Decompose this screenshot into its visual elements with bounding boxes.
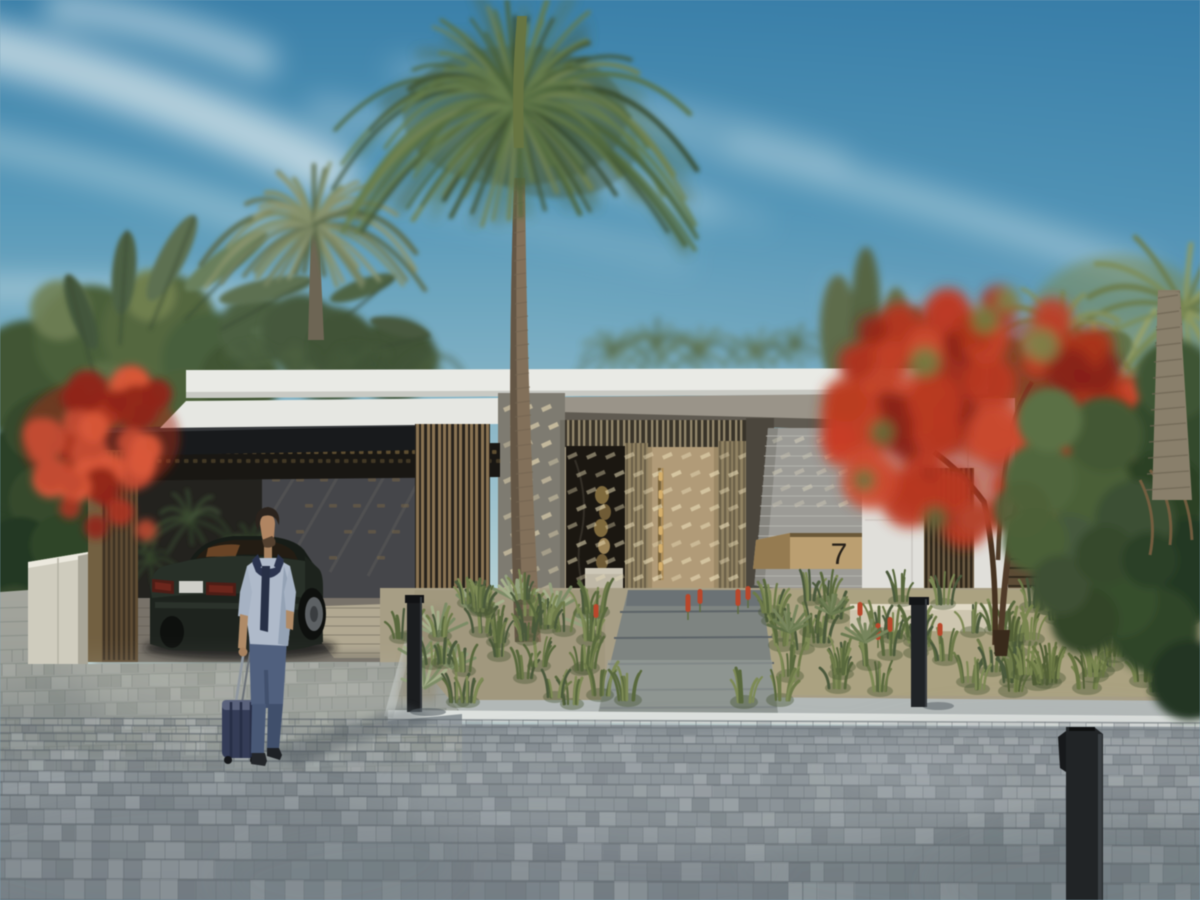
svg-text:7: 7 [831,538,848,571]
